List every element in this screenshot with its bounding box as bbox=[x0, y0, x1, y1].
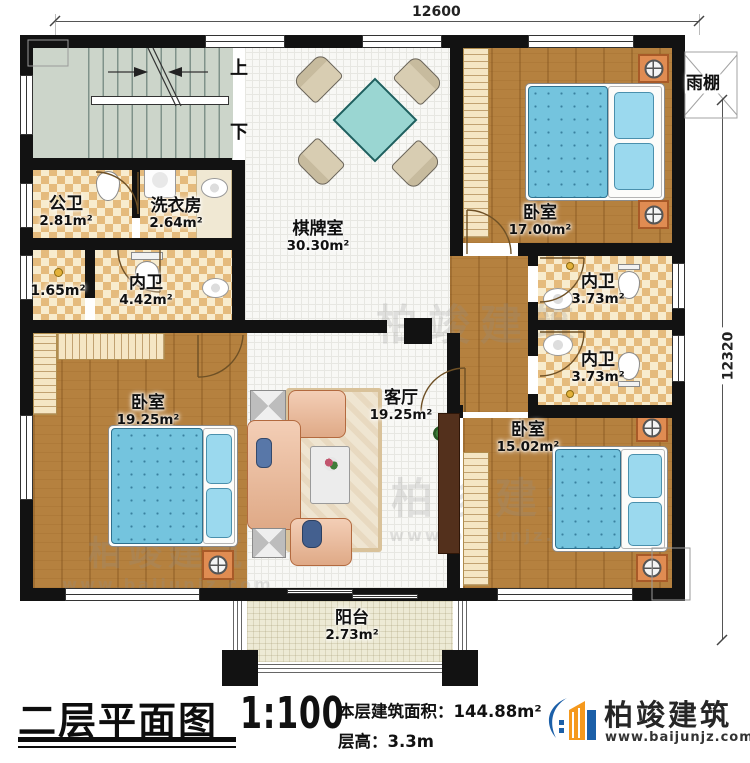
lamp-ensuite-down bbox=[566, 390, 574, 398]
title-underline-thin bbox=[18, 746, 236, 748]
balcony-column-right bbox=[442, 650, 478, 686]
window-left-bath bbox=[20, 183, 33, 228]
window-top-3 bbox=[528, 35, 634, 48]
window-bottom-right bbox=[497, 588, 633, 601]
toilet-tank-ensuite-up bbox=[618, 264, 640, 270]
person-lying bbox=[256, 438, 272, 468]
person-sitting bbox=[302, 520, 322, 548]
floor-area-text: 本层建筑面积：144.88m² bbox=[338, 698, 542, 722]
label-bedroom-bl: 卧室 19.25m² bbox=[117, 394, 180, 428]
bed-tr-mattress bbox=[528, 86, 608, 198]
balcony-column-left bbox=[222, 650, 258, 686]
window-right-bath-up bbox=[672, 263, 685, 309]
title-underline-thick bbox=[18, 737, 236, 742]
stair-down-label: 下 bbox=[230, 118, 248, 144]
bed-bl-pillow-1 bbox=[206, 434, 232, 484]
label-bedroom-tr: 卧室 17.00m² bbox=[509, 204, 572, 238]
bed-br-pillow-1 bbox=[628, 454, 662, 498]
brand-name: 柏竣建筑 bbox=[604, 692, 732, 734]
toilet-tank-ensuite-left bbox=[131, 252, 163, 260]
window-right-bath-down bbox=[672, 335, 685, 382]
lamp-closet bbox=[54, 268, 63, 277]
wardrobe-bl-top bbox=[57, 333, 165, 360]
nightstand-br-bottom bbox=[636, 554, 668, 582]
bed-br-mattress bbox=[555, 449, 621, 549]
balcony-slider-door-2 bbox=[352, 594, 418, 599]
flower-vase-icon bbox=[324, 457, 338, 471]
title-bar: 二层平面图 1:100 本层建筑面积：144.88m² 层高：3.3m 柏竣建筑… bbox=[0, 688, 750, 763]
stair-up-label: 上 bbox=[230, 54, 248, 80]
wardrobe-bl-left bbox=[33, 333, 57, 415]
sink-ensuite-left bbox=[202, 278, 229, 298]
label-laundry: 洗衣房 2.64m² bbox=[149, 197, 202, 231]
wardrobe-br bbox=[463, 452, 489, 586]
balcony-slider-door-1 bbox=[287, 589, 353, 594]
window-bottom-left bbox=[65, 588, 200, 601]
label-living: 客厅 19.25m² bbox=[370, 389, 433, 423]
floorplan-sheet: 12600 12320 柏竣建筑 柏竣建筑 www.baijunjz.com 柏… bbox=[0, 0, 750, 763]
window-left-stair bbox=[20, 75, 33, 135]
stair-handrail bbox=[91, 96, 229, 105]
sink-ensuite-up bbox=[543, 288, 573, 310]
balcony-rail-bottom bbox=[233, 664, 467, 673]
bed-tr-pillow-2 bbox=[614, 143, 654, 190]
floor-height-text: 层高：3.3m bbox=[338, 728, 434, 752]
window-top-1 bbox=[205, 35, 285, 48]
plan-scale: 1:100 bbox=[240, 688, 344, 739]
label-ensuite-down: 内卫 3.73m² bbox=[571, 351, 624, 385]
sink-ensuite-down bbox=[543, 334, 573, 356]
sink-laundry bbox=[201, 178, 228, 198]
label-balcony: 阳台 2.73m² bbox=[325, 609, 378, 643]
wall-right bbox=[672, 35, 685, 601]
label-ensuite-up: 内卫 3.73m² bbox=[571, 273, 624, 307]
nightstand-br-top bbox=[636, 414, 668, 442]
wardrobe-bedroom-tr bbox=[463, 48, 489, 238]
bed-bl-mattress bbox=[111, 428, 203, 544]
bed-br-pillow-2 bbox=[628, 502, 662, 546]
window-top-2 bbox=[362, 35, 442, 48]
label-closet: 1.65m² bbox=[30, 284, 85, 300]
nightstand-bl bbox=[202, 550, 234, 580]
label-public-bath: 公卫 2.81m² bbox=[39, 195, 92, 229]
label-canopy: 雨棚 bbox=[685, 74, 721, 93]
nightstand-tr-bottom bbox=[638, 200, 669, 229]
bed-tr-pillow-1 bbox=[614, 92, 654, 139]
label-bedroom-br: 卧室 15.02m² bbox=[497, 421, 560, 455]
dim-line-top bbox=[55, 21, 700, 22]
staircase-area bbox=[33, 48, 233, 160]
brand-url: www.baijunjz.com bbox=[605, 730, 750, 745]
dim-width-label: 12600 bbox=[408, 4, 465, 20]
side-table-top bbox=[250, 390, 286, 422]
dim-height-label: 12320 bbox=[720, 328, 736, 385]
lamp-ensuite-up bbox=[566, 262, 574, 270]
sofa-left bbox=[247, 420, 301, 530]
label-game-room: 棋牌室 30.30m² bbox=[287, 220, 350, 254]
brand-logo-icon bbox=[545, 694, 601, 750]
bed-bl-pillow-2 bbox=[206, 488, 232, 538]
label-ensuite-left: 内卫 4.42m² bbox=[119, 274, 172, 308]
coffee-table bbox=[310, 446, 350, 504]
side-table-bottom bbox=[252, 528, 286, 558]
nightstand-tr-top bbox=[638, 54, 669, 83]
tv-cabinet bbox=[438, 413, 460, 554]
window-left-bedroom bbox=[20, 415, 33, 500]
